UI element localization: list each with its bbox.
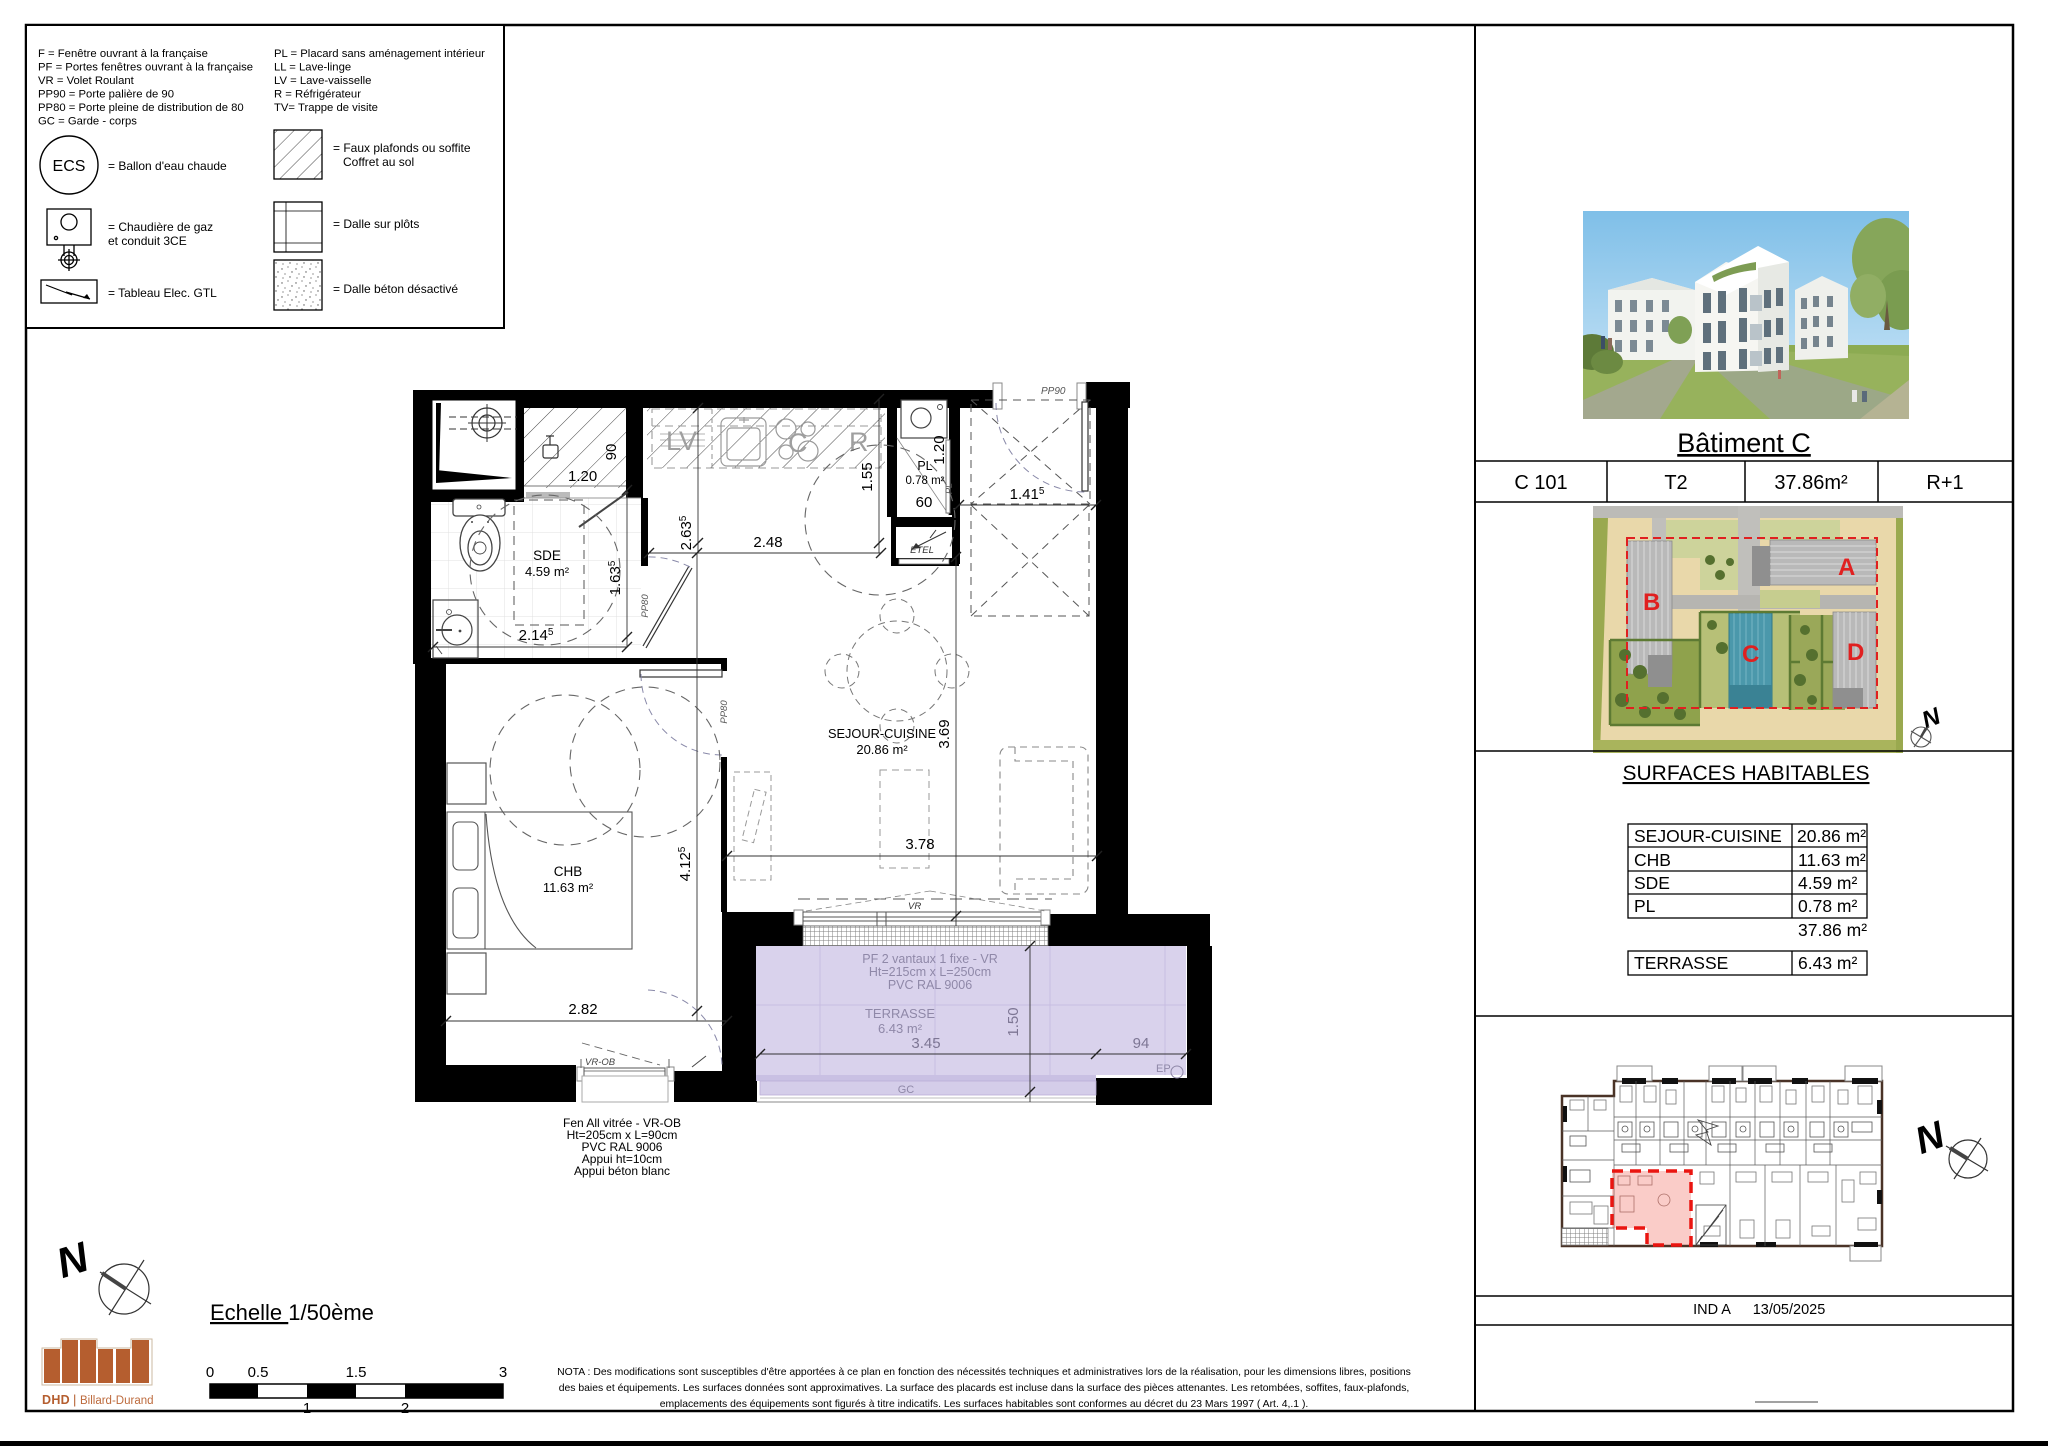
- svg-text:3.78: 3.78: [905, 836, 934, 853]
- svg-text:SDE: SDE: [533, 548, 561, 563]
- svg-text:C 101: C 101: [1514, 472, 1567, 494]
- svg-text:37.86 m²: 37.86 m²: [1798, 920, 1867, 940]
- svg-text:= Faux plafonds ou soffite: = Faux plafonds ou soffite: [333, 141, 471, 155]
- svg-text:11.63 m²: 11.63 m²: [543, 880, 594, 895]
- svg-text:Ht=215cm x L=250cm: Ht=215cm x L=250cm: [869, 965, 991, 979]
- svg-text:SDE: SDE: [1634, 873, 1670, 893]
- svg-text:A: A: [1838, 554, 1855, 581]
- svg-text:PVC RAL 9006: PVC RAL 9006: [888, 978, 972, 992]
- svg-text:PP80: PP80: [640, 594, 651, 618]
- svg-text:Billard-Durand: Billard-Durand: [80, 1395, 154, 1407]
- svg-text:R+1: R+1: [1926, 472, 1963, 494]
- svg-text:Echelle 1/50ème: Echelle 1/50ème: [210, 1300, 374, 1325]
- svg-text:0.5: 0.5: [248, 1364, 269, 1381]
- svg-text:1.20: 1.20: [931, 435, 948, 464]
- svg-text:6.43 m²: 6.43 m²: [1798, 953, 1857, 973]
- svg-text:GC: GC: [898, 1084, 915, 1096]
- svg-text:= Tableau Elec. GTL: = Tableau Elec. GTL: [108, 286, 217, 300]
- svg-text:LV = Lave-vaisselle: LV = Lave-vaisselle: [274, 75, 371, 87]
- svg-text:NOTA : Des modifications sont: NOTA : Des modifications sont susceptibl…: [557, 1367, 1411, 1378]
- svg-text:PF = Portes fenêtres ouvrant à: PF = Portes fenêtres ouvrant à la frança…: [38, 62, 253, 74]
- svg-text:13/05/2025: 13/05/2025: [1753, 1302, 1826, 1318]
- svg-text:1.50: 1.50: [1005, 1007, 1022, 1036]
- svg-text:PF 2 vantaux 1 fixe - VR: PF 2 vantaux 1 fixe - VR: [862, 952, 997, 966]
- svg-text:0: 0: [206, 1364, 214, 1381]
- svg-text:PL: PL: [917, 459, 932, 473]
- svg-text:Appui béton blanc: Appui béton blanc: [574, 1164, 670, 1178]
- svg-text:60: 60: [916, 494, 933, 511]
- svg-text:= Dalle béton désactivé: = Dalle béton désactivé: [333, 282, 458, 296]
- svg-text:4.59 m²: 4.59 m²: [525, 564, 570, 579]
- svg-text:6.43 m²: 6.43 m²: [878, 1021, 923, 1036]
- svg-text:PP80: PP80: [719, 700, 730, 724]
- svg-text:GC = Garde - corps: GC = Garde - corps: [38, 116, 137, 128]
- svg-text:D: D: [1847, 639, 1864, 666]
- svg-text:SEJOUR-CUISINE: SEJOUR-CUISINE: [1634, 826, 1782, 846]
- svg-text:3: 3: [499, 1364, 507, 1381]
- svg-text:CHB: CHB: [1634, 850, 1671, 870]
- svg-text:= Ballon d'eau chaude: = Ballon d'eau chaude: [108, 159, 227, 173]
- svg-text:20.86 m²: 20.86 m²: [856, 742, 908, 757]
- svg-text:T2: T2: [1664, 472, 1687, 494]
- svg-text:2.82: 2.82: [568, 1001, 597, 1018]
- svg-text:R: R: [849, 427, 869, 457]
- svg-text:4.59 m²: 4.59 m²: [1798, 873, 1857, 893]
- svg-text:= Dalle sur plôts: = Dalle sur plôts: [333, 217, 419, 231]
- svg-text:EP: EP: [1156, 1063, 1171, 1075]
- svg-text:PL = Placard sans aménagement: PL = Placard sans aménagement intérieur: [274, 48, 485, 60]
- svg-text:SURFACES HABITABLES: SURFACES HABITABLES: [1622, 762, 1869, 785]
- svg-text:des baies et équipements. Les: des baies et équipements. Les surfaces d…: [559, 1383, 1410, 1394]
- svg-text:VR: VR: [908, 901, 921, 912]
- svg-text:1.55: 1.55: [859, 462, 876, 491]
- svg-text:2: 2: [401, 1400, 409, 1417]
- svg-text:LL = Lave-linge: LL = Lave-linge: [274, 62, 351, 74]
- svg-text:PL: PL: [1634, 896, 1656, 916]
- svg-text:VR = Volet Roulant: VR = Volet Roulant: [38, 75, 135, 87]
- svg-text:PP80 = Porte pleine de distrib: PP80 = Porte pleine de distribution de 8…: [38, 102, 244, 114]
- svg-text:37.86m²: 37.86m²: [1774, 472, 1848, 494]
- svg-text:TERRASSE: TERRASSE: [865, 1006, 935, 1021]
- svg-text:B: B: [1643, 589, 1660, 616]
- svg-text:11.63 m²: 11.63 m²: [1798, 850, 1866, 870]
- svg-text:20.86 m²: 20.86 m²: [1797, 826, 1866, 846]
- svg-text:F = Fenêtre ouvrant à la franç: F = Fenêtre ouvrant à la française: [38, 48, 208, 60]
- svg-text:VR-OB: VR-OB: [585, 1057, 616, 1068]
- svg-text:2.48: 2.48: [753, 534, 782, 551]
- svg-text:0.78 m²: 0.78 m²: [906, 475, 945, 487]
- svg-text:ECS: ECS: [53, 158, 86, 175]
- svg-text:C: C: [788, 428, 808, 458]
- svg-text:PL: PL: [944, 483, 954, 494]
- svg-text:90: 90: [603, 444, 620, 461]
- svg-text:DHD: DHD: [42, 1393, 70, 1407]
- svg-text:PP90: PP90: [1041, 386, 1066, 397]
- svg-text:TERRASSE: TERRASSE: [1634, 953, 1728, 973]
- svg-text:1: 1: [303, 1400, 311, 1417]
- svg-text:1.5: 1.5: [346, 1364, 367, 1381]
- svg-text:LV: LV: [666, 426, 697, 456]
- svg-text:IND A: IND A: [1693, 1302, 1731, 1318]
- svg-text:ETEL: ETEL: [910, 545, 934, 556]
- svg-text:PP90 = Porte palière de 90: PP90 = Porte palière de 90: [38, 89, 174, 101]
- svg-text:C: C: [1742, 641, 1759, 668]
- svg-text:CHB: CHB: [554, 864, 583, 879]
- svg-text:Bâtiment C: Bâtiment C: [1677, 428, 1811, 458]
- svg-text:3.69: 3.69: [936, 719, 953, 748]
- svg-text:et conduit 3CE: et conduit 3CE: [108, 234, 187, 248]
- svg-text:0.78 m²: 0.78 m²: [1798, 896, 1857, 916]
- svg-text:R = Réfrigérateur: R = Réfrigérateur: [274, 89, 361, 101]
- svg-text:1.20: 1.20: [568, 468, 597, 485]
- svg-text:Coffret au sol: Coffret au sol: [343, 155, 414, 169]
- svg-text:= Chaudière de gaz: = Chaudière de gaz: [108, 220, 213, 234]
- svg-text:TV= Trappe de visite: TV= Trappe de visite: [274, 102, 378, 114]
- svg-text:|: |: [73, 1392, 76, 1407]
- svg-text:3.45: 3.45: [911, 1035, 940, 1052]
- svg-text:SEJOUR-CUISINE: SEJOUR-CUISINE: [828, 726, 936, 741]
- svg-text:94: 94: [1133, 1035, 1150, 1052]
- svg-text:emplacements des équipements s: emplacements des équipements sont figuré…: [660, 1399, 1309, 1410]
